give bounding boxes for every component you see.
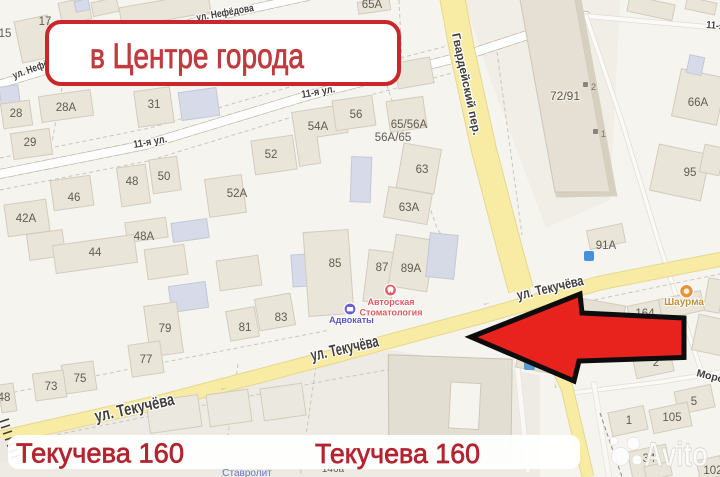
- svg-text:63: 63: [416, 164, 429, 176]
- svg-text:105: 105: [662, 412, 681, 424]
- svg-text:Авторская: Авторская: [368, 297, 415, 307]
- svg-text:66А: 66А: [688, 97, 709, 109]
- svg-text:48: 48: [126, 176, 139, 188]
- svg-text:65А: 65А: [362, 0, 383, 11]
- svg-text:89А: 89А: [401, 263, 422, 275]
- svg-text:15: 15: [0, 28, 11, 40]
- svg-text:48: 48: [0, 392, 10, 404]
- svg-text:42А: 42А: [16, 213, 37, 225]
- svg-text:72/91: 72/91: [550, 89, 580, 103]
- svg-text:Текучева 160: Текучева 160: [16, 438, 184, 469]
- svg-text:29: 29: [24, 137, 37, 149]
- svg-text:83: 83: [275, 312, 288, 324]
- svg-text:54А: 54А: [308, 121, 329, 133]
- svg-text:81: 81: [239, 322, 252, 334]
- svg-text:44: 44: [89, 247, 102, 259]
- svg-text:Avito: Avito: [644, 436, 708, 474]
- svg-text:56: 56: [350, 109, 363, 121]
- svg-text:73: 73: [45, 381, 58, 393]
- svg-text:77: 77: [140, 354, 153, 366]
- svg-text:5: 5: [691, 396, 697, 408]
- svg-text:в Центре города: в Центре города: [90, 37, 304, 76]
- svg-text:2: 2: [591, 82, 596, 92]
- svg-text:28: 28: [10, 108, 23, 120]
- svg-text:48А: 48А: [134, 231, 155, 243]
- svg-text:56А/65: 56А/65: [375, 132, 411, 144]
- svg-text:52А: 52А: [227, 188, 248, 200]
- svg-text:1: 1: [601, 129, 606, 139]
- svg-text:91А: 91А: [596, 240, 617, 252]
- svg-text:31: 31: [148, 99, 161, 111]
- svg-text:52: 52: [265, 149, 278, 161]
- svg-text:Ставролит: Ставролит: [222, 468, 272, 477]
- svg-text:28А: 28А: [56, 102, 77, 114]
- svg-text:1: 1: [626, 415, 632, 427]
- svg-text:50: 50: [158, 171, 171, 183]
- svg-text:79: 79: [159, 323, 172, 335]
- svg-text:46: 46: [68, 192, 81, 204]
- svg-text:Адвокаты: Адвокаты: [329, 315, 374, 325]
- svg-text:Текучева 160: Текучева 160: [315, 438, 480, 469]
- svg-text:65/56А: 65/56А: [391, 119, 428, 131]
- svg-text:85: 85: [329, 258, 342, 270]
- svg-text:75: 75: [74, 373, 87, 385]
- svg-text:Шаурма: Шаурма: [664, 297, 704, 308]
- svg-text:87: 87: [376, 262, 389, 274]
- svg-text:95: 95: [684, 167, 697, 179]
- svg-text:63А: 63А: [399, 202, 420, 214]
